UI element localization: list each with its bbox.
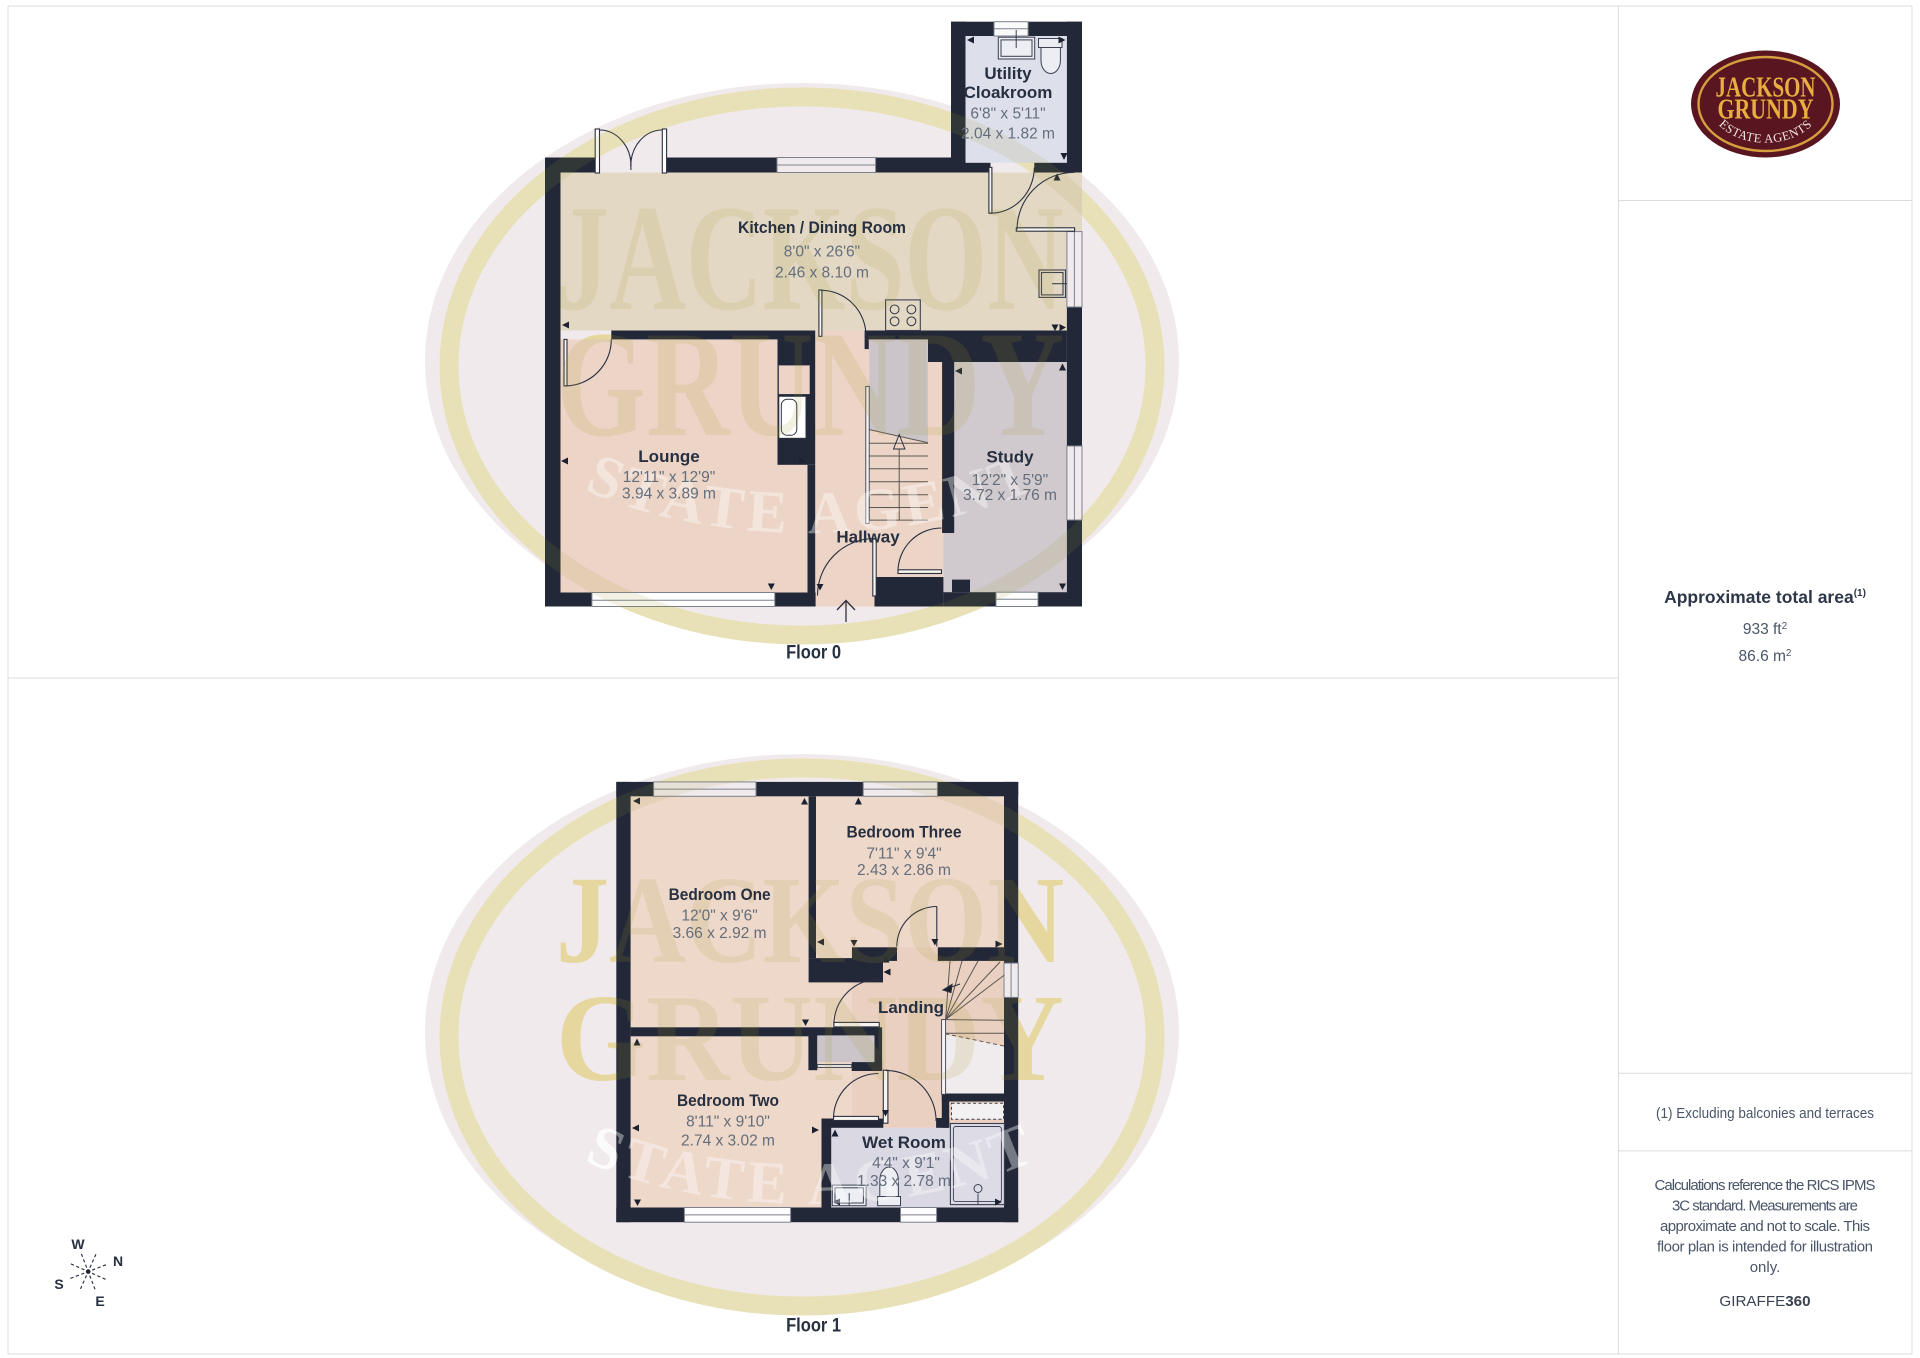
svg-text:7'11" x 9'4": 7'11" x 9'4" xyxy=(866,846,941,863)
svg-text:3C standard. Measurements are: 3C standard. Measurements are xyxy=(1672,1198,1858,1215)
svg-text:GIRAFFE360: GIRAFFE360 xyxy=(1719,1293,1810,1310)
svg-text:3.72 x 1.76 m: 3.72 x 1.76 m xyxy=(963,487,1057,504)
svg-text:12'11" x 12'9": 12'11" x 12'9" xyxy=(623,469,715,486)
svg-text:Utility: Utility xyxy=(984,64,1032,83)
svg-text:Study: Study xyxy=(986,448,1034,467)
svg-text:W: W xyxy=(71,1236,85,1252)
svg-text:Cloakroom: Cloakroom xyxy=(964,83,1053,102)
svg-text:12'0" x 9'6": 12'0" x 9'6" xyxy=(681,908,757,925)
svg-text:933 ft2: 933 ft2 xyxy=(1743,621,1788,638)
svg-text:1.33 x 2.78 m: 1.33 x 2.78 m xyxy=(857,1173,951,1190)
svg-text:Wet Room: Wet Room xyxy=(862,1133,946,1152)
svg-text:Lounge: Lounge xyxy=(638,447,699,466)
svg-text:86.6 m2: 86.6 m2 xyxy=(1739,648,1792,665)
svg-text:Hallway: Hallway xyxy=(836,528,900,547)
svg-text:2.04 x 1.82 m: 2.04 x 1.82 m xyxy=(961,126,1055,143)
svg-text:N: N xyxy=(113,1253,123,1269)
svg-text:Kitchen / Dining Room: Kitchen / Dining Room xyxy=(738,218,906,237)
svg-text:Approximate total area(1): Approximate total area(1) xyxy=(1664,587,1866,607)
svg-text:approximate and not to scale.: approximate and not to scale. This xyxy=(1660,1218,1870,1235)
svg-text:2.46 x 8.10 m: 2.46 x 8.10 m xyxy=(775,265,869,282)
svg-text:4'4" x 9'1": 4'4" x 9'1" xyxy=(872,1155,940,1172)
svg-text:3.66 x 2.92 m: 3.66 x 2.92 m xyxy=(673,925,767,942)
svg-text:floor plan is intended for ill: floor plan is intended for illustration xyxy=(1657,1239,1873,1256)
svg-text:(1) Excluding balconies and te: (1) Excluding balconies and terraces xyxy=(1656,1105,1874,1122)
svg-text:only.: only. xyxy=(1750,1259,1781,1276)
svg-text:Floor 1: Floor 1 xyxy=(786,1316,841,1337)
svg-text:Landing: Landing xyxy=(878,998,944,1017)
svg-text:8'11" x 9'10": 8'11" x 9'10" xyxy=(686,1114,770,1131)
svg-text:E: E xyxy=(95,1293,104,1309)
svg-text:Calculations reference the RIC: Calculations reference the RICS IPMS xyxy=(1655,1177,1876,1194)
svg-text:Bedroom One: Bedroom One xyxy=(669,885,771,904)
svg-text:GRUNDY: GRUNDY xyxy=(1718,95,1814,126)
svg-text:Bedroom Two: Bedroom Two xyxy=(677,1091,779,1110)
svg-text:6'8" x 5'11": 6'8" x 5'11" xyxy=(970,106,1045,123)
svg-text:2.74 x 3.02 m: 2.74 x 3.02 m xyxy=(681,1133,775,1150)
svg-text:Floor 0: Floor 0 xyxy=(786,643,841,664)
svg-text:2.43 x 2.86 m: 2.43 x 2.86 m xyxy=(857,862,951,879)
svg-text:3.94 x 3.89 m: 3.94 x 3.89 m xyxy=(622,486,716,503)
svg-text:Bedroom Three: Bedroom Three xyxy=(847,823,962,842)
svg-text:8'0" x 26'6": 8'0" x 26'6" xyxy=(784,244,860,261)
svg-text:S: S xyxy=(54,1276,63,1292)
